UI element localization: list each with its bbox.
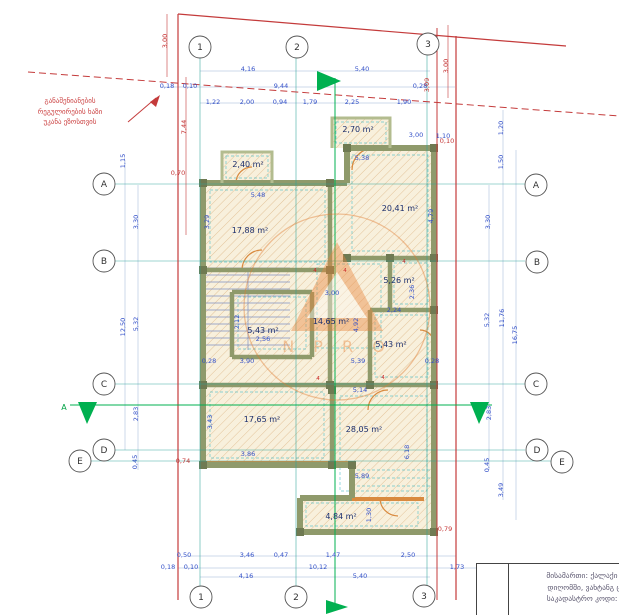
grid-bubble-label: 3 <box>421 592 427 602</box>
grid-bubble-label: D <box>534 446 541 456</box>
column <box>343 144 351 152</box>
plan-svg: A N P R O 4,165,400,180,109,440,281,222,… <box>0 0 619 615</box>
dimension-label: 3,43 <box>206 415 214 429</box>
dimension-label: 5,89 <box>355 472 369 480</box>
section-arrow-bottom <box>326 600 348 614</box>
regulation-line-annotation: განაშენიანების რეგულირების ხაზი უკანა ეზ… <box>12 96 128 128</box>
dimension-label: 5,48 <box>251 191 265 199</box>
title-block-left-cell <box>477 564 509 615</box>
room-area-label: 28,05 m² <box>346 425 382 434</box>
annotation-line: განაშენიანების <box>12 96 128 107</box>
grid-bubble-label: 2 <box>293 593 299 603</box>
dimension-label: 3,46 <box>240 551 254 559</box>
grid-bubble-1: 1 <box>189 36 211 58</box>
room-area-label: 5,43 m² <box>247 326 278 335</box>
dimension-label: 1,22 <box>206 98 220 106</box>
grid-bubble-C: C <box>525 373 547 395</box>
column <box>296 528 304 536</box>
grid-bubble-2: 2 <box>285 586 307 608</box>
dimension-label: 3,00 <box>325 289 339 297</box>
section-arrow-left <box>78 402 97 424</box>
dimension-label: 1,47 <box>326 551 340 559</box>
dimension-label: 3,30 <box>132 215 140 229</box>
boundary-dimension-label: 3,00 <box>161 34 169 48</box>
room-area-label: 20,41 m² <box>382 204 418 213</box>
boundary-dimension-label: 0,10 <box>440 137 454 145</box>
dimension-label: 2,00 <box>240 98 254 106</box>
dimension-label: 3,90 <box>240 357 254 365</box>
dimension-label: 12,50 <box>119 318 127 337</box>
grid-bubble-1: 1 <box>190 586 212 608</box>
room-area-label: 14,65 m² <box>313 317 349 326</box>
dimension-label: 3,29 <box>203 215 211 229</box>
grid-bubble-label: B <box>534 258 540 268</box>
dimension-label: 1,73 <box>450 563 464 571</box>
dimension-label: 2,36 <box>408 285 416 299</box>
grid-bubble-E: E <box>551 451 573 473</box>
door-tag: 4 <box>402 259 406 265</box>
room-area-label: 2,40 m² <box>232 160 263 169</box>
room-area-label: 5,43 m² <box>375 340 406 349</box>
dimension-label: 2,50 <box>401 551 415 559</box>
room-area-label: 17,88 m² <box>232 226 268 235</box>
room-area-label: 17,65 m² <box>244 415 280 424</box>
boundary-dimension-label: 3,09 <box>423 78 431 92</box>
dimension-label: 2,83 <box>132 407 140 421</box>
dimension-label: 5,38 <box>355 154 369 162</box>
dimension-label: 4,16 <box>239 572 253 580</box>
dimension-label: 2,83 <box>485 406 493 420</box>
dimension-label: 3,86 <box>241 450 255 458</box>
dimension-label: 10,12 <box>309 563 328 571</box>
section-arrow-top <box>317 71 341 91</box>
dimension-label: 11,76 <box>498 309 506 328</box>
boundary-dimension-label: 0,70 <box>171 169 185 177</box>
dimension-label: 0,45 <box>483 458 491 472</box>
grid-bubble-label: 1 <box>198 593 204 603</box>
dimension-label: 3,49 <box>497 483 505 497</box>
grid-bubble-label: B <box>101 257 107 267</box>
grid-bubble-label: C <box>101 380 107 390</box>
dimension-label: 5,40 <box>353 572 367 580</box>
grid-bubble-E: E <box>69 450 91 472</box>
dimension-label: 2,24 <box>387 306 401 314</box>
section-label: A <box>61 403 67 412</box>
dimension-label: 5,39 <box>351 357 365 365</box>
boundary-dimension-label: 0,74 <box>176 457 190 465</box>
room-area-label: 2,70 m² <box>342 125 373 134</box>
annotation-arrowhead <box>150 95 160 107</box>
grid-bubble-label: 1 <box>197 43 203 53</box>
dimension-label: 0,28 <box>202 357 216 365</box>
grid-bubble-label: E <box>77 457 83 467</box>
dimension-label: 2,25 <box>345 98 359 106</box>
dimension-label: 9,44 <box>274 82 288 90</box>
grid-bubble-B: B <box>93 250 115 272</box>
grid-bubble-A: A <box>93 173 115 195</box>
door-tag: 4 <box>343 268 347 274</box>
column <box>326 179 334 187</box>
room-area-label: 5,26 m² <box>383 276 414 285</box>
dimension-label: 1,20 <box>497 121 505 135</box>
boundary-dimension-label: 3,00 <box>442 59 450 73</box>
dimension-label: 5,32 <box>132 317 140 331</box>
dimension-label: 0,50 <box>177 551 191 559</box>
boundary-dimension-label: 7,44 <box>180 120 188 134</box>
grid-bubble-C: C <box>93 373 115 395</box>
grid-bubble-label: 2 <box>294 43 300 53</box>
dimension-label: 5,32 <box>483 313 491 327</box>
dimension-label: 5,40 <box>355 65 369 73</box>
dimension-label: 2,12 <box>233 315 241 329</box>
door-tag: 4 <box>316 376 320 382</box>
grid-bubble-label: D <box>101 446 108 456</box>
grid-bubble-D: D <box>526 439 548 461</box>
dimension-label: 0,10 <box>183 82 197 90</box>
grid-bubble-A: A <box>525 174 547 196</box>
door-tag: 4 <box>381 375 385 381</box>
room-area-label: 4,84 m² <box>325 512 356 521</box>
dimension-label: 3,30 <box>484 215 492 229</box>
annotation-line: უკანა ეზოსთვის <box>12 117 128 128</box>
dimension-label: 0,94 <box>273 98 287 106</box>
cadastral-code-line: საკადასტრო კოდი: 01.72 <box>515 593 619 605</box>
dimension-label: 1,79 <box>303 98 317 106</box>
boundary-dimension-label: 0,79 <box>438 525 452 533</box>
grid-bubble-2: 2 <box>286 36 308 58</box>
dimension-label: 4,79 <box>427 209 435 223</box>
grid-bubble-label: A <box>101 180 108 190</box>
grid-bubble-B: B <box>526 251 548 273</box>
address-line: მისამართი: ქალაქი თბილ <box>515 570 619 582</box>
grid-bubble-label: 3 <box>425 40 431 50</box>
grid-bubble-3: 3 <box>413 585 435 607</box>
title-block: მისამართი: ქალაქი თბილ დიღომში, ვახტანგ … <box>476 563 619 615</box>
grid-bubble-label: E <box>559 458 565 468</box>
dimension-label: 16,75 <box>511 326 519 345</box>
annotation-line: რეგულირების ხაზი <box>12 107 128 118</box>
dimension-label: 4,92 <box>352 318 360 332</box>
dimension-label: 1,90 <box>397 98 411 106</box>
grid-bubble-label: A <box>533 181 540 191</box>
grid-bubble-3: 3 <box>417 33 439 55</box>
title-block-address: მისამართი: ქალაქი თბილ დიღომში, ვახტანგ … <box>509 564 619 615</box>
dimension-label: 0,18 <box>161 563 175 571</box>
grid-bubble-label: C <box>533 380 539 390</box>
grid-bubble-D: D <box>93 439 115 461</box>
dimension-label: 0,47 <box>274 551 288 559</box>
door-tag: 4 <box>313 268 317 274</box>
address-line: დიღომში, ვახტანგ ცინცაძ <box>515 582 619 594</box>
dimension-label: 1,30 <box>365 508 373 522</box>
floor-plan-drawing: A N P R O 4,165,400,180,109,440,281,222,… <box>0 0 619 615</box>
dimension-label: 5,14 <box>353 386 367 394</box>
dimension-label: 0,28 <box>425 357 439 365</box>
dimension-label: 1,15 <box>119 154 127 168</box>
dimension-label: 0,10 <box>184 563 198 571</box>
dimension-label: 4,16 <box>241 65 255 73</box>
dimension-label: 1,50 <box>497 155 505 169</box>
dimension-label: 3,00 <box>409 131 423 139</box>
dimension-label: 0,45 <box>131 455 139 469</box>
column <box>348 461 356 469</box>
dimension-label: 0,18 <box>160 82 174 90</box>
dimension-label: 2,56 <box>256 335 270 343</box>
dimension-label: 6,18 <box>403 445 411 459</box>
